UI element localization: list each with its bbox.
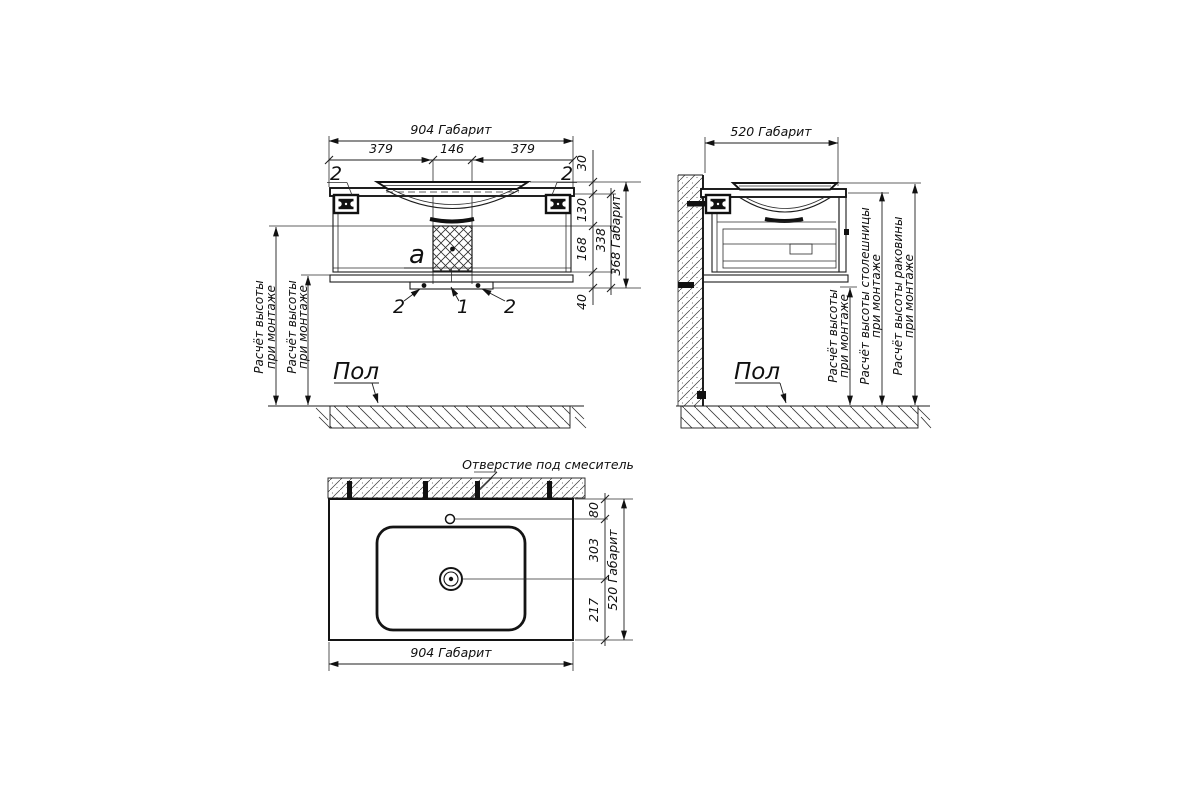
plan-dim-faucet-offset: 80 xyxy=(586,502,601,518)
front-bracket-right xyxy=(546,195,570,213)
side-wall-hatch xyxy=(678,175,703,406)
front-dim-rim-offset: 30 xyxy=(574,155,589,171)
plan-anchor-3 xyxy=(475,481,480,500)
front-mount-height-2-line2: при монтаже xyxy=(296,285,310,369)
front-floor-label: Пол xyxy=(333,359,379,385)
plan-dim-overall-depth: 520 Габарит xyxy=(605,529,620,611)
side-bracket xyxy=(706,195,730,213)
front-mount-height-1-line2: при монтаже xyxy=(264,285,278,369)
plan-anchor-2 xyxy=(423,481,428,500)
front-dim-overall-width: 904 Габарит xyxy=(410,122,492,137)
front-dim-upper-section: 130 xyxy=(574,198,589,222)
side-floor-label: Пол xyxy=(734,359,780,385)
vanity-drawing-svg: 904 Габарит 379 146 379 xyxy=(0,0,1194,800)
side-sink-height-line2: при монтаже xyxy=(902,254,916,338)
canvas-background xyxy=(0,0,1194,800)
plan-dim-drain-to-front: 217 xyxy=(586,598,601,622)
front-callout-bottom-center: 1 xyxy=(457,296,469,318)
front-floor-hatch xyxy=(330,406,570,428)
front-dim-lower-section: 168 xyxy=(574,237,589,261)
front-dim-body-height: 338 xyxy=(593,228,608,252)
front-callout-bottom-right: 2 xyxy=(504,296,516,318)
side-door-handle xyxy=(844,229,849,235)
front-dim-overall-height: 368 Габарит xyxy=(608,194,623,276)
side-floor-hatch xyxy=(681,406,918,428)
front-dim-plinth-height: 40 xyxy=(574,294,589,310)
side-floor-anchor xyxy=(697,391,706,399)
front-bracket-left xyxy=(334,195,358,213)
side-lower-anchor xyxy=(678,282,694,288)
plan-dim-overall-width: 904 Габарит xyxy=(410,645,492,660)
side-countertop-height-line2: при монтаже xyxy=(869,254,883,338)
plan-faucet-hole-label: Отверстие под смеситель xyxy=(462,457,634,472)
technical-drawing-page: 904 Габарит 379 146 379 xyxy=(0,0,1194,800)
side-dim-overall-depth: 520 Габарит xyxy=(730,124,812,139)
front-dim-center-segment: 146 xyxy=(440,141,464,156)
front-callout-block: a xyxy=(409,240,425,270)
plan-wall-hatch xyxy=(328,478,585,498)
plan-dim-faucet-to-drain: 303 xyxy=(586,538,601,562)
plan-anchor-1 xyxy=(347,481,352,500)
front-dim-left-segment: 379 xyxy=(369,141,393,156)
side-mount-height-line2: при монтаже xyxy=(837,294,851,378)
front-callout-bottom-left: 2 xyxy=(393,296,405,318)
plan-faucet-hole xyxy=(446,515,455,524)
plan-anchor-4 xyxy=(547,481,552,500)
front-dim-right-segment: 379 xyxy=(511,141,535,156)
front-callout-top-left: 2 xyxy=(330,163,342,185)
